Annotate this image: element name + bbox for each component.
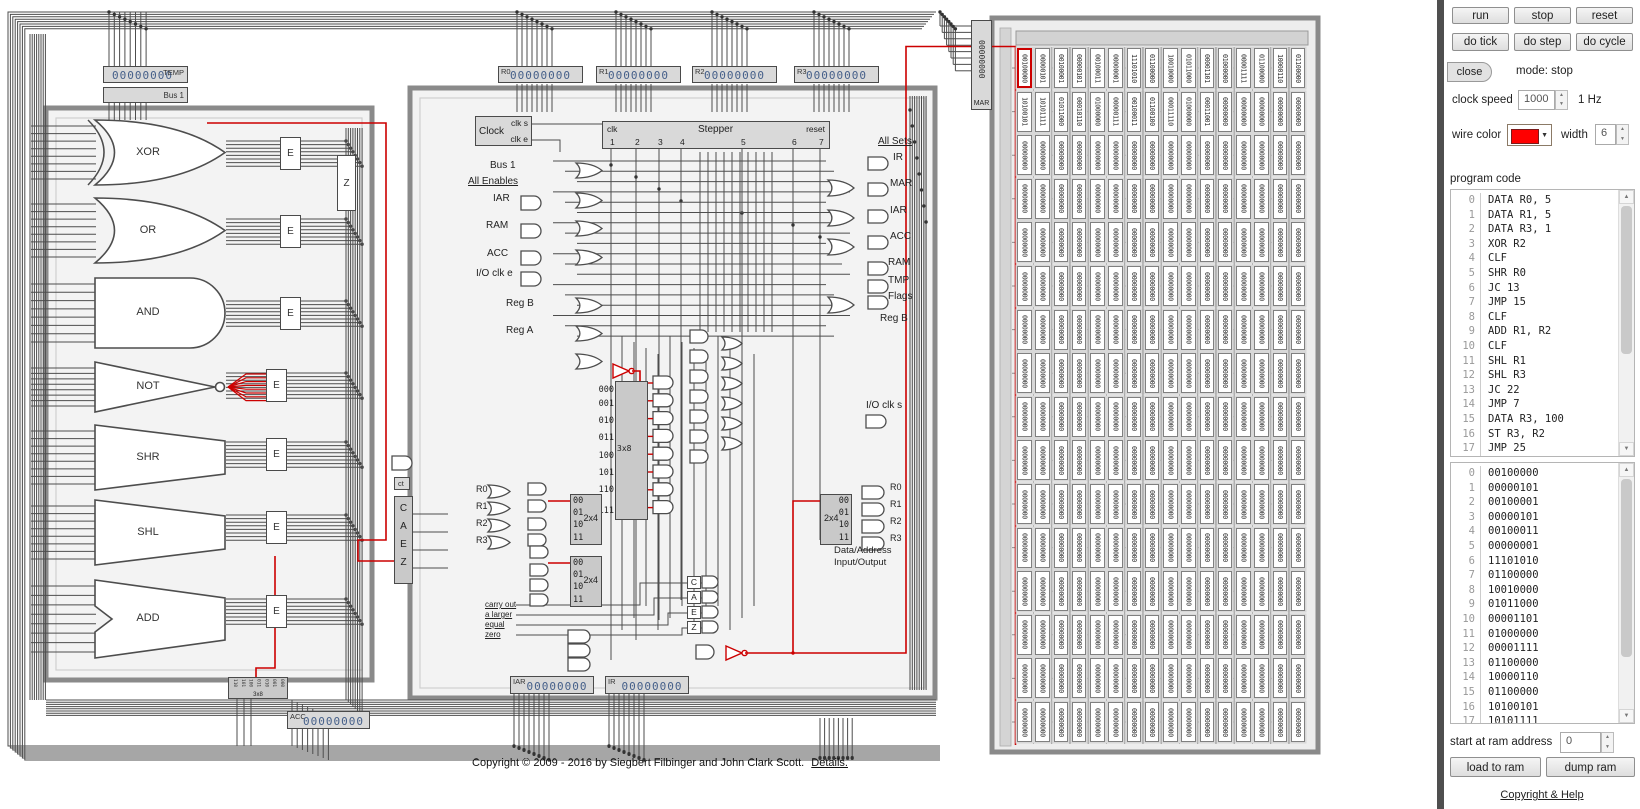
ram-cell: 00000000 xyxy=(1254,222,1269,262)
ram-cell: 00000000 xyxy=(1090,440,1105,480)
ram-address: 16 xyxy=(1451,700,1481,715)
wire-color-select[interactable]: ▼ xyxy=(1507,124,1552,146)
ram-cell: 00000000 xyxy=(1163,658,1178,698)
clk-e-label: clk e xyxy=(511,134,528,144)
alu-encoder-bits: 110101100011010001000 xyxy=(232,679,284,687)
zero-flag-label: Z xyxy=(343,178,349,189)
code-line: JMP 15 xyxy=(1481,295,1526,310)
list-row: 10CLF xyxy=(1451,339,1634,354)
ram-address: 7 xyxy=(1451,568,1481,583)
flag-gate-letter: Z xyxy=(687,621,701,634)
do-cycle-button[interactable]: do cycle xyxy=(1576,33,1633,51)
ram-cell: 00000000 xyxy=(1218,440,1233,480)
code-line: SHL R3 xyxy=(1481,368,1526,383)
ir-register: IR 00000000 xyxy=(605,676,689,694)
ram-cell: 00000000 xyxy=(1054,484,1069,524)
ram-cell: 00000000 xyxy=(1108,571,1123,611)
mar-register: 00000000 MAR xyxy=(971,20,992,110)
enable-box: E xyxy=(280,137,301,170)
encoder-bit-label: 010 xyxy=(263,679,268,687)
ram-cell: 00000000 xyxy=(1163,353,1178,393)
ct-label: ct xyxy=(398,479,404,488)
ram-cell: 00000000 xyxy=(1145,528,1160,568)
ram-rows: 0001000001000001012001000013000001014001… xyxy=(1451,463,1634,724)
list-row: 16ST R3, R2 xyxy=(1451,427,1634,442)
program-scroll-thumb[interactable] xyxy=(1621,206,1632,354)
ram-cell: 00000001 xyxy=(1108,48,1123,88)
copyright-text: Copyright © 2009 - 2016 by Siegbert Filb… xyxy=(472,757,804,769)
ram-cell: 00000000 xyxy=(1200,658,1215,698)
list-row: 8CLF xyxy=(1451,310,1634,325)
ram-cell: 00000000 xyxy=(1145,484,1160,524)
details-link[interactable]: Details. xyxy=(811,757,848,769)
scroll-up-icon[interactable]: ▲ xyxy=(1619,190,1634,204)
decoder-2x4-output: 00 xyxy=(573,558,583,568)
ram-cell: 00000000 xyxy=(1218,222,1233,262)
ram-cell: 00000000 xyxy=(1273,702,1288,742)
ram-value: 10010000 xyxy=(1481,583,1539,598)
ram-cell: 00000000 xyxy=(1181,658,1196,698)
line-number: 3 xyxy=(1451,237,1481,252)
reg-select-label: R2 xyxy=(890,516,902,526)
line-number: 11 xyxy=(1451,354,1481,369)
start-address-input[interactable]: 0 xyxy=(1560,732,1601,753)
ram-cell: 00000000 xyxy=(1218,615,1233,655)
set-mar-label: MAR xyxy=(890,178,912,189)
list-row: 7JMP 15 xyxy=(1451,295,1634,310)
line-number: 4 xyxy=(1451,251,1481,266)
enable-box: E xyxy=(266,369,287,402)
line-number: 1 xyxy=(1451,208,1481,223)
ram-cell: 00000000 xyxy=(1181,179,1196,219)
mode-status: mode: stop xyxy=(1516,65,1573,77)
ram-cell: 00000000 xyxy=(1127,135,1142,175)
start-address-spinner[interactable]: ▲▼ xyxy=(1601,732,1614,753)
clock-speed-label: clock speed xyxy=(1452,94,1513,106)
flag-condition-label: carry out xyxy=(485,600,516,609)
ram-cell: 00000000 xyxy=(1017,222,1032,262)
ram-cell: 00000000 xyxy=(1035,135,1050,175)
ram-cell: 00000000 xyxy=(1054,615,1069,655)
ram-cell: 00000000 xyxy=(1090,484,1105,524)
flag-letter: A xyxy=(395,521,412,532)
reg-select-label: R1 xyxy=(476,501,488,511)
ram-cell: 00000000 xyxy=(1181,222,1196,262)
ram-cell: 00000000 xyxy=(1017,353,1032,393)
list-row: 1DATA R1, 5 xyxy=(1451,208,1634,223)
ram-cell: 00000000 xyxy=(1291,440,1306,480)
ram-cell: 00000000 xyxy=(1236,266,1251,306)
list-row: 1710101111 xyxy=(1451,714,1634,724)
ram-cell: 00000000 xyxy=(1218,702,1233,742)
ram-cell: 10000110 xyxy=(1273,48,1288,88)
run-button[interactable]: run xyxy=(1452,7,1509,24)
all-sets-heading: All Sets xyxy=(878,136,912,147)
ram-cell: 00000111 xyxy=(1108,92,1123,132)
register-value: 00000000 xyxy=(693,69,776,82)
ram-cell: 00000000 xyxy=(1090,266,1105,306)
list-row: 2DATA R3, 1 xyxy=(1451,222,1634,237)
decoder-2x4-label: 2x4 xyxy=(824,513,839,523)
register-value: 00000000 xyxy=(795,69,878,82)
scroll-up-icon[interactable]: ▲ xyxy=(1619,463,1634,477)
ram-cell: 00000000 xyxy=(1291,397,1306,437)
ram-cell: 00100001 xyxy=(1054,48,1069,88)
ram-cell: 00000000 xyxy=(1035,528,1050,568)
ram-value: 10101111 xyxy=(1481,714,1539,724)
clk-s-label: clk s xyxy=(511,118,528,128)
ram-address: 4 xyxy=(1451,524,1481,539)
set-ir-label: IR xyxy=(893,152,903,163)
ram-cell: 00000000 xyxy=(1291,615,1306,655)
alu-encoder-3x8: 110101100011010001000 3x8 xyxy=(228,677,288,699)
list-row: 901011000 xyxy=(1451,597,1634,612)
ram-cell: 00000000 xyxy=(1181,440,1196,480)
list-row: 1200001111 xyxy=(1451,641,1634,656)
ram-cell: 00011001 xyxy=(1200,92,1215,132)
ram-cell: 00000000 xyxy=(1273,528,1288,568)
list-row: 611101010 xyxy=(1451,554,1634,569)
ram-cell: 00000000 xyxy=(1273,571,1288,611)
ram-cell: 00000000 xyxy=(1163,571,1178,611)
clock-speed-spinner[interactable]: ▲▼ xyxy=(1555,90,1568,110)
ram-cell: 00000000 xyxy=(1127,353,1142,393)
ram-cell: 00000000 xyxy=(1218,310,1233,350)
ram-cell: 00000000 xyxy=(1054,310,1069,350)
ram-cell: 00000000 xyxy=(1145,179,1160,219)
ram-cell: 00001111 xyxy=(1236,48,1251,88)
ram-cell: 00000000 xyxy=(1181,266,1196,306)
ram-cell: 00000000 xyxy=(1163,266,1178,306)
ram-cell: 00000000 xyxy=(1108,266,1123,306)
ram-cell: 00000000 xyxy=(1273,440,1288,480)
ram-cell: 00000000 xyxy=(1145,571,1160,611)
ram-cell: 00000000 xyxy=(1163,135,1178,175)
code-line: CLF xyxy=(1481,251,1507,266)
encoder-bit-label: 011 xyxy=(255,679,260,687)
control-panel: run stop reset do tick do step do cycle … xyxy=(1444,0,1640,809)
ram-cell: 00000000 xyxy=(1291,658,1306,698)
code-line: XOR R2 xyxy=(1481,237,1526,252)
copyright-help-link[interactable]: Copyright & Help xyxy=(1500,789,1583,801)
ram-cell: 00000000 xyxy=(1291,484,1306,524)
decoder-3x8-output: 010 xyxy=(599,416,614,426)
ram-cell: 00000000 xyxy=(1090,353,1105,393)
stepper-step: 7 xyxy=(819,137,824,147)
ram-cell: 00000000 xyxy=(1127,528,1142,568)
enable-box: E xyxy=(266,438,287,471)
line-number: 16 xyxy=(1451,427,1481,442)
io-clk-s-label: I/O clk s xyxy=(866,400,902,411)
all-enables-heading: All Enables xyxy=(468,176,518,187)
list-row: 1301100000 xyxy=(1451,656,1634,671)
ram-cell: 00000000 xyxy=(1273,266,1288,306)
code-line: SHL R1 xyxy=(1481,354,1526,369)
list-row: 13JC 22 xyxy=(1451,383,1634,398)
ram-value: 00000001 xyxy=(1481,539,1539,554)
ram-cell: 00000000 xyxy=(1218,484,1233,524)
ram-address: 2 xyxy=(1451,495,1481,510)
encoder-bit-label: 001 xyxy=(271,679,276,687)
ram-cell: 00000000 xyxy=(1054,222,1069,262)
set-flags-label: Flags xyxy=(888,291,912,302)
ram-address: 10 xyxy=(1451,612,1481,627)
ram-address: 11 xyxy=(1451,627,1481,642)
decoder-2x4-output: 01 xyxy=(573,508,583,518)
ram-cell: 00000000 xyxy=(1254,571,1269,611)
ram-cell: 00000000 xyxy=(1273,658,1288,698)
stepper-step: 1 xyxy=(610,137,615,147)
ram-cell: 00000000 xyxy=(1090,702,1105,742)
do-step-button[interactable]: do step xyxy=(1514,33,1571,51)
list-row: 5SHR R0 xyxy=(1451,266,1634,281)
ram-value: 01000000 xyxy=(1481,627,1539,642)
bus1-label: Bus 1 xyxy=(164,91,184,100)
wire-color-swatch xyxy=(1511,129,1539,144)
ram-value: 01100000 xyxy=(1481,656,1539,671)
program-code-label: program code xyxy=(1450,173,1521,185)
enable-box: E xyxy=(280,215,301,248)
list-row: 14JMP 7 xyxy=(1451,397,1634,412)
do-tick-button[interactable]: do tick xyxy=(1452,33,1509,51)
ram-cell: 00000000 xyxy=(1108,310,1123,350)
enable-bus1-label: Bus 1 xyxy=(490,160,516,171)
ram-cell: 00000000 xyxy=(1035,702,1050,742)
ram-cell: 00000000 xyxy=(1145,615,1160,655)
ram-cell: 00000000 xyxy=(1218,266,1233,306)
flag-gate-letter: A xyxy=(687,591,701,604)
iar-register: IAR 00000000 xyxy=(510,676,594,694)
list-row: 4CLF xyxy=(1451,251,1634,266)
reset-button[interactable]: reset xyxy=(1576,7,1633,24)
line-number: 2 xyxy=(1451,222,1481,237)
ram-cell: 00000000 xyxy=(1108,397,1123,437)
cpu-simulator-app: 00000000 TEMP Bus 1 R000000000R100000000… xyxy=(0,0,1640,809)
program-scrollbar[interactable]: ▲ ▼ xyxy=(1618,190,1634,456)
ram-scroll-thumb[interactable] xyxy=(1621,479,1632,657)
copyright-line: Copyright © 2009 - 2016 by Siegbert Filb… xyxy=(380,757,940,769)
ram-cell: 00000000 xyxy=(1108,615,1123,655)
code-line: DATA R0, 5 xyxy=(1481,193,1551,208)
ram-cell: 00000000 xyxy=(1054,440,1069,480)
code-line: SHR R0 xyxy=(1481,266,1526,281)
scroll-down-icon[interactable]: ▼ xyxy=(1619,709,1634,723)
decoder-2x4-output: 11 xyxy=(573,595,583,605)
ram-cell: 00000000 xyxy=(1200,702,1215,742)
ram-cell: 00000000 xyxy=(1090,179,1105,219)
decoder-2x4-output: 01 xyxy=(839,508,849,518)
ram-cell: 00000000 xyxy=(1127,484,1142,524)
io-data-address-label: Data/Address xyxy=(834,545,892,556)
ram-cell: 00000000 xyxy=(1017,571,1032,611)
ram-value: 00000101 xyxy=(1481,481,1539,496)
ram-cell: 00000000 xyxy=(1273,615,1288,655)
flag-gate-letter: E xyxy=(687,606,701,619)
line-number: 12 xyxy=(1451,368,1481,383)
ram-cell: 00000000 xyxy=(1108,702,1123,742)
ram-cell: 00000000 xyxy=(1072,571,1087,611)
ram-list-scrollbar[interactable]: ▲ ▼ xyxy=(1618,463,1634,723)
ram-cell: 11101010 xyxy=(1127,48,1142,88)
ram-cell: 00000000 xyxy=(1200,266,1215,306)
code-line: JMP 7 xyxy=(1481,397,1520,412)
acc-register: ACC 00000000 xyxy=(287,711,370,729)
ram-cell: 00000000 xyxy=(1072,135,1087,175)
ram-cell: 00000000 xyxy=(1181,571,1196,611)
load-to-ram-button[interactable]: load to ram xyxy=(1450,757,1541,777)
ram-cell: 00000101 xyxy=(1035,48,1050,88)
ram-value: 10100101 xyxy=(1481,700,1539,715)
decoder-2x4-output: 10 xyxy=(573,582,583,592)
list-row: 1101000000 xyxy=(1451,627,1634,642)
ram-cell: 00000000 xyxy=(1145,135,1160,175)
ram-address: 3 xyxy=(1451,510,1481,525)
ram-cell: 00000000 xyxy=(1090,528,1105,568)
temp-label: TEMP xyxy=(163,68,184,77)
ram-cell: 00000000 xyxy=(1054,353,1069,393)
list-row: 810010000 xyxy=(1451,583,1634,598)
register-value: 00000000 xyxy=(597,69,680,82)
clock-speed-input[interactable]: 1000 xyxy=(1518,90,1555,110)
ram-value: 01100000 xyxy=(1481,685,1539,700)
ram-cell: 00000000 xyxy=(1072,484,1087,524)
close-button[interactable]: close xyxy=(1447,62,1492,82)
ram-cell: 00000000 xyxy=(1035,222,1050,262)
ram-cell: 00000000 xyxy=(1090,222,1105,262)
ram-cell: 00000000 xyxy=(1200,615,1215,655)
ram-cell: 00000000 xyxy=(1254,135,1269,175)
decoder-2x4-output: 11 xyxy=(573,533,583,543)
ram-cell: 00000000 xyxy=(1017,702,1032,742)
set-iar-label: IAR xyxy=(890,205,907,216)
ram-cell: 00000000 xyxy=(1291,266,1306,306)
bus1-box: Bus 1 xyxy=(103,87,188,103)
ram-cell: 00000000 xyxy=(1072,179,1087,219)
ram-cell: 00000000 xyxy=(1127,702,1142,742)
alu-gate-label-not: NOT xyxy=(118,380,178,392)
flag-condition-label: equal xyxy=(485,620,505,629)
ram-cell: 00000000 xyxy=(1291,222,1306,262)
reg-select-label: R3 xyxy=(476,535,488,545)
ram-cell: 01011000 xyxy=(1181,48,1196,88)
program-code-editor[interactable]: 0DATA R0, 51DATA R1, 52DATA R3, 13XOR R2… xyxy=(1450,189,1635,457)
ram-cell: 00000000 xyxy=(1291,179,1306,219)
alu-encoder-label: 3x8 xyxy=(229,692,287,698)
ram-cell: 00000000 xyxy=(1108,353,1123,393)
decoder-2x4-output: 01 xyxy=(573,570,583,580)
ram-cell: 00000000 xyxy=(1127,571,1142,611)
ram-cell: 00000000 xyxy=(1017,266,1032,306)
ram-contents-list: 0001000001000001012001000013000001014001… xyxy=(1450,462,1635,724)
ram-cell: 00000000 xyxy=(1072,397,1087,437)
ram-cell: 00000000 xyxy=(1127,179,1142,219)
alu-gate-label-add: ADD xyxy=(118,612,178,624)
scroll-down-icon[interactable]: ▼ xyxy=(1619,442,1634,456)
ram-cell: 00000000 xyxy=(1145,266,1160,306)
enable-reg-a-label: Reg A xyxy=(506,325,533,336)
ram-cell: 00000000 xyxy=(1035,266,1050,306)
ram-cell: 00000000 xyxy=(1054,571,1069,611)
reg-select-label: R0 xyxy=(476,484,488,494)
ram-cell: 00000000 xyxy=(1273,179,1288,219)
wire-width-input[interactable]: 6 xyxy=(1595,124,1616,145)
ram-cell: 00000000 xyxy=(1090,310,1105,350)
ram-cell: 00000000 xyxy=(1017,528,1032,568)
clock-label: Clock xyxy=(479,126,504,137)
list-row: 17JMP 25 xyxy=(1451,441,1634,456)
ram-cell: 00000000 xyxy=(1072,615,1087,655)
ram-cell: 00000000 xyxy=(1254,484,1269,524)
ram-value: 11101010 xyxy=(1481,554,1539,569)
line-number: 10 xyxy=(1451,339,1481,354)
list-row: 1610100101 xyxy=(1451,700,1634,715)
ram-cell: 00000000 xyxy=(1273,92,1288,132)
ram-cell: 00000000 xyxy=(1127,440,1142,480)
ram-cell: 00000000 xyxy=(1054,397,1069,437)
ram-cell: 00000000 xyxy=(1236,658,1251,698)
ram-cell: 00000000 xyxy=(1254,92,1269,132)
decoder-3x8-label: 3x8 xyxy=(617,444,631,453)
stepper-box: clk Stepper reset 1234567 xyxy=(602,121,830,149)
list-row: 15DATA R3, 100 xyxy=(1451,412,1634,427)
dump-ram-button[interactable]: dump ram xyxy=(1546,757,1635,777)
set-reg-b-label: Reg B xyxy=(880,313,908,324)
reg-select-label: R0 xyxy=(890,482,902,492)
stop-button[interactable]: stop xyxy=(1514,7,1571,24)
register-r2: R200000000 xyxy=(692,66,777,83)
start-address-label: start at ram address xyxy=(1450,736,1552,748)
ram-cell: 00000000 xyxy=(1254,397,1269,437)
ram-cell: 00000000 xyxy=(1035,658,1050,698)
ram-cell: 00000000 xyxy=(1072,528,1087,568)
ram-cell: 00000000 xyxy=(1254,310,1269,350)
ir-value: 00000000 xyxy=(606,680,688,693)
wire-width-spinner[interactable]: ▲▼ xyxy=(1616,124,1629,145)
ram-cell: 00000000 xyxy=(1291,702,1306,742)
ram-cell: 00000000 xyxy=(1236,528,1251,568)
ram-cell: 00000000 xyxy=(1054,528,1069,568)
ram-cell: 00000000 xyxy=(1035,484,1050,524)
ram-cell: 00000000 xyxy=(1035,353,1050,393)
ram-cell: 00000000 xyxy=(1054,179,1069,219)
ram-cell: 00000000 xyxy=(1291,571,1306,611)
temp-register: 00000000 TEMP xyxy=(103,66,188,83)
ram-cell: 00000000 xyxy=(1181,484,1196,524)
ram-cell: 00000000 xyxy=(1072,353,1087,393)
ram-cell: 00000000 xyxy=(1236,353,1251,393)
stepper-title: Stepper xyxy=(698,124,733,135)
ram-cell: 00000000 xyxy=(1145,353,1160,393)
enable-ram-label: RAM xyxy=(486,220,508,231)
ram-cell: 00000000 xyxy=(1236,397,1251,437)
ram-cell: 00000000 xyxy=(1236,702,1251,742)
ram-address: 14 xyxy=(1451,670,1481,685)
ram-address: 12 xyxy=(1451,641,1481,656)
register-value: 00000000 xyxy=(499,69,582,82)
line-number: 0 xyxy=(1451,193,1481,208)
ram-cell: 00000000 xyxy=(1254,179,1269,219)
alu-gate-label-shl: SHL xyxy=(118,526,178,538)
ram-cell: 00000000 xyxy=(1181,615,1196,655)
wire-color-label: wire color xyxy=(1452,129,1501,141)
list-row: 000100000 xyxy=(1451,466,1634,481)
flag-gate-letter: C xyxy=(687,576,701,589)
ram-cell: 10100101 xyxy=(1017,92,1032,132)
stepper-step: 5 xyxy=(741,137,746,147)
list-row: 9ADD R1, R2 xyxy=(1451,324,1634,339)
alu-gate-label-or: OR xyxy=(118,224,178,236)
ram-cell: 00000000 xyxy=(1108,528,1123,568)
